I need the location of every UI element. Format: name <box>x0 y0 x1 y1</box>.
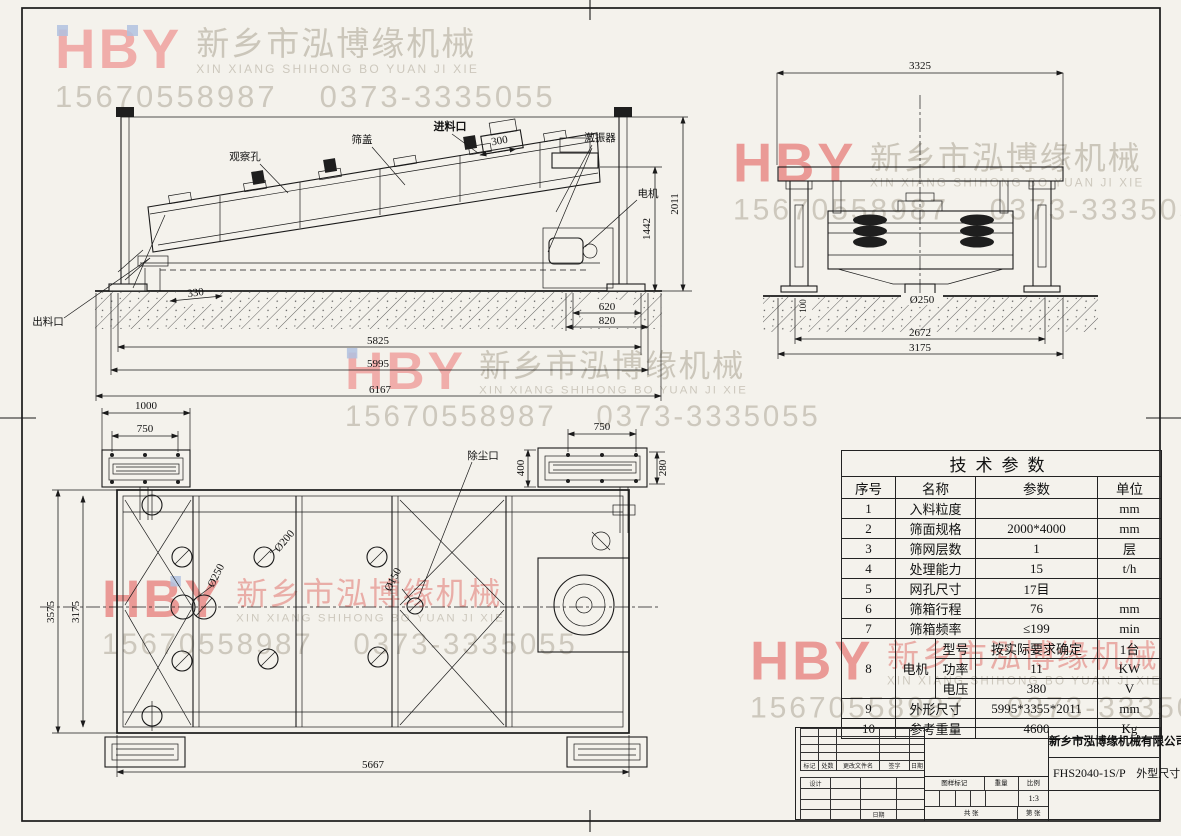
label-sign: 签字 <box>880 761 910 771</box>
cell: 11 <box>976 659 1098 679</box>
dim-outlet-dia: Ø250 <box>910 294 935 306</box>
dim-3575: 3575 <box>45 601 57 624</box>
cell: t/h <box>1098 559 1162 579</box>
cell: 型号 <box>936 639 976 659</box>
dim-3325: 3325 <box>909 60 932 72</box>
cell: 筛箱频率 <box>896 619 976 639</box>
label-weight: 重量 <box>985 777 1019 790</box>
dim-400: 400 <box>515 459 527 476</box>
cell: 网孔尺寸 <box>896 579 976 599</box>
front-elevation-view: 3325 <box>763 60 1098 359</box>
weight-value <box>986 791 1019 806</box>
cell: mm <box>1098 699 1162 719</box>
dim-820: 820 <box>599 315 616 327</box>
dim-300: 300 <box>490 134 509 149</box>
stamp-header-row: 图样标记 重量 比例 <box>924 777 1048 790</box>
table-row: 5网孔尺寸17目 <box>842 579 1162 599</box>
dim-hole-top: Ø200 <box>272 527 297 554</box>
cell: 外形尺寸 <box>896 699 976 719</box>
stamp-box <box>971 791 986 806</box>
table-row: 4处理能力15t/h <box>842 559 1162 579</box>
cell <box>1098 579 1162 599</box>
cell: 76 <box>976 599 1098 619</box>
dim-620: 620 <box>599 301 616 313</box>
label-scale: 比例 <box>1019 777 1048 790</box>
cell: mm <box>1098 499 1162 519</box>
cell: 7 <box>842 619 896 639</box>
cell: 电机 <box>896 639 936 699</box>
col-header-name: 名称 <box>896 477 976 499</box>
stamp-box <box>925 791 940 806</box>
table-row: 1入料粒度mm <box>842 499 1162 519</box>
plan-view: 1000 750 750 400 <box>40 400 669 777</box>
table-row: 6筛箱行程76mm <box>842 599 1162 619</box>
label-design: 设计 <box>801 778 831 789</box>
cell: 1 <box>976 539 1098 559</box>
label-date: 日期 <box>910 761 925 771</box>
cell: 处理能力 <box>896 559 976 579</box>
drawing-title: 外型尺寸 <box>1136 768 1180 780</box>
dim-3175-plan: 3175 <box>70 601 82 624</box>
table-row: 9外形尺寸5995*3355*2011mm <box>842 699 1162 719</box>
stamp-value-row: 1:3 <box>924 790 1048 806</box>
cell: 15 <box>976 559 1098 579</box>
dim-3175: 3175 <box>909 342 932 354</box>
stamp-box <box>940 791 955 806</box>
cell: 6 <box>842 599 896 619</box>
cell: 筛网层数 <box>896 539 976 559</box>
label-exciter: 激振器 <box>584 131 616 144</box>
cell: 筛面规格 <box>896 519 976 539</box>
dim-750-right: 750 <box>594 421 611 433</box>
drawing-model: FHS2040-1S/P <box>1053 766 1125 780</box>
dim-2011: 2011 <box>669 193 681 215</box>
col-header-unit: 单位 <box>1098 477 1162 499</box>
cell: ≤199 <box>976 619 1098 639</box>
cell: 1 <box>842 499 896 519</box>
table-row: 3筛网层数1层 <box>842 539 1162 559</box>
dim-5667: 5667 <box>362 759 385 771</box>
table-row-motor: 8 电机 型号 按实际要求确定 1台 <box>842 639 1162 659</box>
cell: 5 <box>842 579 896 599</box>
technical-parameters-table: 技术参数 序号 名称 参数 单位 1入料粒度mm 2筛面规格2000*4000m… <box>841 450 1162 739</box>
dim-1000: 1000 <box>135 400 158 412</box>
drawing-title-row: FHS2040-1S/P 外型尺寸 <box>1049 758 1159 791</box>
company-name: 新乡市泓博缘机械有限公司 <box>1049 728 1159 758</box>
dim-hole-mid: Ø250 <box>205 562 227 590</box>
label-mark: 标记 <box>801 761 819 771</box>
label-motor: 电机 <box>638 187 659 200</box>
cell: 8 <box>842 639 896 699</box>
cell: 3 <box>842 539 896 559</box>
dim-750-left: 750 <box>137 423 154 435</box>
title-block: 标记 处数 更改文件名 签字 日期 设计 日期 图样标记 重量 比例 <box>795 727 1161 820</box>
cell: 9 <box>842 699 896 719</box>
cell: 2000*4000 <box>976 519 1098 539</box>
dim-100: 100 <box>798 299 808 313</box>
title-block-right: 新乡市泓博缘机械有限公司 FHS2040-1S/P 外型尺寸 <box>1048 728 1159 821</box>
label-discharge-outlet: 出料口 <box>32 315 64 328</box>
cell: KW <box>1098 659 1162 679</box>
signature-table: 设计 日期 <box>800 777 925 820</box>
label-sheets: 共 张 <box>925 807 1018 821</box>
table-row: 2筛面规格2000*4000mm <box>842 519 1162 539</box>
table-row: 7筛箱频率≤199min <box>842 619 1162 639</box>
side-elevation-view: 观察孔 筛盖 进料口 300 激振器 电机 1442 2011 出料口 <box>32 107 692 401</box>
col-header-param: 参数 <box>976 477 1098 499</box>
cell: 380 <box>976 679 1098 699</box>
cell: mm <box>1098 519 1162 539</box>
dim-hole-small: Ø150 <box>382 566 404 594</box>
cell: 5995*3355*2011 <box>976 699 1098 719</box>
cell: min <box>1098 619 1162 639</box>
stamp-empty-cell <box>924 728 1048 777</box>
dim-2672: 2672 <box>909 327 931 339</box>
label-sheet-no: 第 张 <box>1018 807 1048 821</box>
cell: 4 <box>842 559 896 579</box>
col-header-no: 序号 <box>842 477 896 499</box>
cell: 筛箱行程 <box>896 599 976 619</box>
sheet-count-row: 共 张 第 张 <box>924 806 1048 821</box>
cell: 17目 <box>976 579 1098 599</box>
cell: 2 <box>842 519 896 539</box>
revision-table: 标记 处数 更改文件名 签字 日期 <box>800 728 925 771</box>
label-count: 处数 <box>819 761 837 771</box>
dim-1442: 1442 <box>641 218 653 240</box>
label-observation-hole: 观察孔 <box>229 150 261 163</box>
label-date2: 日期 <box>861 810 897 820</box>
scale-value: 1:3 <box>1019 791 1048 806</box>
cell: 1台 <box>1098 639 1162 659</box>
label-screen-cover: 筛盖 <box>352 133 373 146</box>
drawing-sheet: HBY 新乡市泓博缘机械 XIN XIANG SHIHONG BO YUAN J… <box>0 0 1181 836</box>
dim-330: 330 <box>187 286 206 300</box>
label-change-file: 更改文件名 <box>837 761 880 771</box>
dim-280: 280 <box>657 459 669 476</box>
cell: 功率 <box>936 659 976 679</box>
cell: 电压 <box>936 679 976 699</box>
label-dust-port: 除尘口 <box>467 449 499 462</box>
cell: 按实际要求确定 <box>976 639 1098 659</box>
cell: V <box>1098 679 1162 699</box>
dim-6167: 6167 <box>369 384 392 396</box>
cell <box>976 499 1098 519</box>
dim-5995: 5995 <box>367 358 390 370</box>
label-feed-inlet: 进料口 <box>434 119 467 133</box>
label-drawing-mark: 图样标记 <box>925 777 985 790</box>
dim-5825: 5825 <box>367 335 390 347</box>
stamp-box <box>956 791 971 806</box>
cell: 层 <box>1098 539 1162 559</box>
cell: 入料粒度 <box>896 499 976 519</box>
table-title: 技术参数 <box>842 451 1162 477</box>
cell: mm <box>1098 599 1162 619</box>
